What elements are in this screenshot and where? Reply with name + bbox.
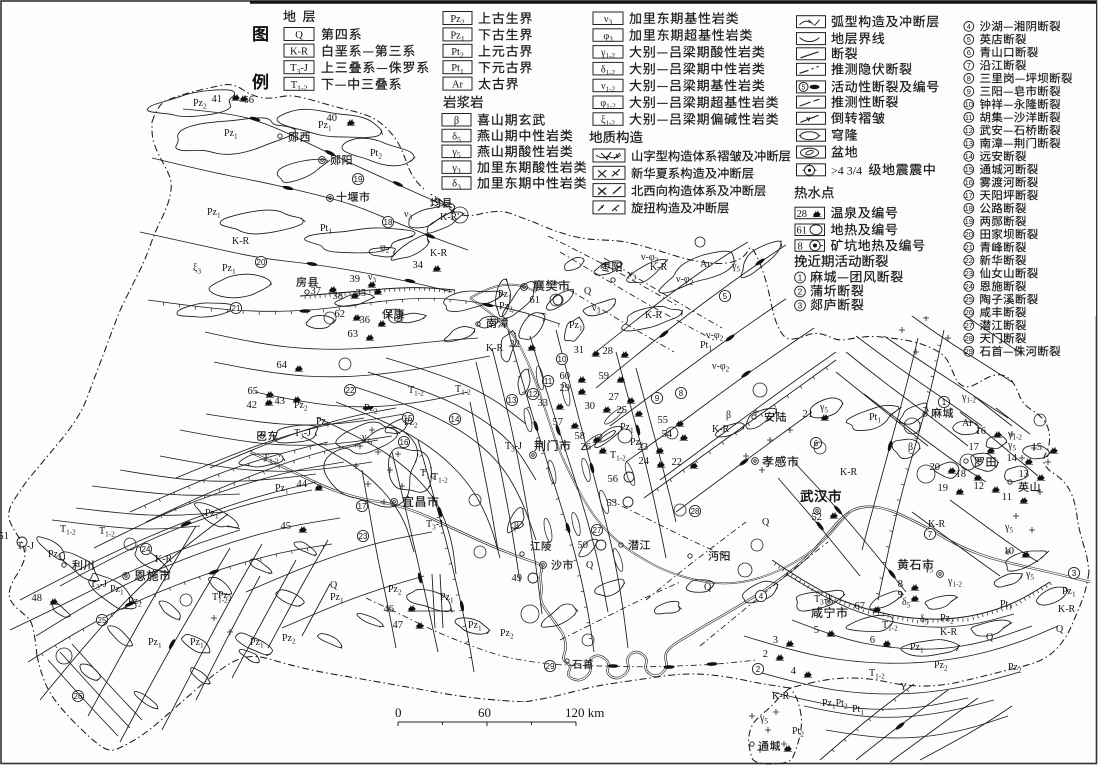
svg-text:Q: Q	[986, 632, 994, 643]
svg-text:18: 18	[956, 469, 967, 480]
svg-text:14: 14	[1007, 453, 1018, 464]
svg-text:3: 3	[798, 301, 803, 310]
svg-text:5: 5	[967, 35, 971, 44]
svg-text:10: 10	[965, 100, 973, 109]
svg-text:3: 3	[773, 635, 778, 646]
svg-text:K-R: K-R	[650, 262, 668, 273]
svg-text:6: 6	[870, 635, 875, 646]
svg-text:120 km: 120 km	[565, 705, 604, 720]
svg-text:24: 24	[142, 545, 151, 554]
svg-text:46: 46	[384, 604, 395, 615]
svg-text:19: 19	[965, 217, 973, 226]
svg-text:7: 7	[928, 530, 933, 539]
svg-text:28: 28	[797, 209, 808, 220]
svg-text:2: 2	[763, 649, 768, 660]
svg-text:21: 21	[965, 243, 973, 252]
svg-text:Q: Q	[295, 30, 303, 41]
svg-text:11: 11	[1002, 492, 1012, 503]
svg-text:4: 4	[791, 666, 797, 677]
svg-text:39: 39	[350, 274, 361, 285]
svg-text:Q: Q	[704, 582, 712, 593]
svg-text:29: 29	[546, 662, 555, 671]
svg-text:1: 1	[771, 740, 776, 751]
svg-text:31: 31	[574, 345, 585, 356]
svg-text:K-R: K-R	[232, 236, 250, 247]
svg-text:25: 25	[617, 405, 628, 416]
svg-text:Ar: Ar	[962, 418, 973, 429]
svg-text:63: 63	[348, 329, 359, 340]
svg-text:64: 64	[277, 360, 288, 371]
svg-text:16: 16	[965, 178, 973, 187]
svg-text:43: 43	[275, 396, 286, 407]
svg-text:22: 22	[346, 386, 355, 395]
svg-text:41: 41	[212, 94, 223, 105]
svg-text:12: 12	[974, 481, 985, 492]
svg-text:26: 26	[965, 308, 973, 317]
svg-text:27: 27	[609, 392, 620, 403]
svg-text:2: 2	[798, 287, 803, 296]
svg-text:0: 0	[395, 705, 402, 720]
svg-text:9: 9	[898, 590, 903, 601]
svg-text:27: 27	[965, 321, 973, 330]
svg-text:24: 24	[639, 456, 650, 467]
svg-text:K-R: K-R	[155, 554, 173, 565]
svg-text:8: 8	[798, 241, 803, 252]
svg-text:K-R: K-R	[486, 343, 504, 354]
svg-text:20: 20	[257, 258, 266, 267]
svg-text:16: 16	[976, 426, 987, 437]
svg-text:36: 36	[360, 315, 371, 326]
svg-text:38: 38	[333, 291, 344, 302]
svg-text:18: 18	[384, 218, 393, 227]
svg-text:29: 29	[560, 383, 571, 394]
svg-text:28: 28	[603, 346, 614, 357]
svg-text:56: 56	[608, 474, 619, 485]
svg-text:52: 52	[812, 512, 823, 523]
svg-text:5: 5	[814, 625, 819, 636]
svg-text:47: 47	[393, 620, 404, 631]
svg-text:K-R: K-R	[712, 424, 730, 435]
svg-text:19: 19	[938, 483, 949, 494]
svg-text:30: 30	[585, 401, 596, 412]
svg-text:59: 59	[599, 371, 610, 382]
svg-text:48: 48	[32, 593, 43, 604]
svg-text:54: 54	[662, 429, 673, 440]
svg-text:42: 42	[247, 400, 258, 411]
svg-text:12: 12	[965, 126, 973, 135]
svg-text:34: 34	[413, 260, 424, 271]
svg-text:32: 32	[510, 339, 521, 350]
svg-text:17: 17	[358, 502, 367, 511]
svg-text:K-R: K-R	[430, 248, 448, 259]
svg-text:25: 25	[98, 616, 107, 625]
svg-text:21: 21	[803, 409, 814, 420]
svg-text:58: 58	[575, 431, 586, 442]
svg-text:Q: Q	[330, 580, 338, 591]
svg-text:28: 28	[691, 507, 700, 516]
svg-text:57: 57	[553, 417, 564, 428]
svg-text:26: 26	[581, 442, 592, 453]
svg-text:22: 22	[965, 256, 973, 265]
svg-text:13: 13	[1019, 469, 1030, 480]
svg-text:1: 1	[798, 273, 803, 282]
svg-text:61: 61	[797, 226, 808, 237]
svg-text:8: 8	[898, 579, 903, 590]
svg-text:Ar: Ar	[700, 259, 711, 270]
svg-text:16: 16	[400, 438, 409, 447]
svg-text:14: 14	[451, 415, 460, 424]
svg-text:53: 53	[607, 498, 618, 509]
svg-text:K-R: K-R	[645, 310, 663, 321]
svg-text:β: β	[454, 116, 459, 127]
svg-text:49: 49	[512, 573, 523, 584]
svg-text:10: 10	[1004, 546, 1015, 557]
svg-text:Q: Q	[586, 560, 594, 571]
svg-text:65: 65	[248, 386, 259, 397]
svg-text:9: 9	[655, 394, 660, 403]
svg-text:6: 6	[967, 48, 971, 57]
svg-text:67: 67	[855, 601, 866, 612]
svg-text:60: 60	[560, 371, 571, 382]
svg-text:28: 28	[965, 334, 973, 343]
svg-text:61: 61	[530, 295, 541, 306]
svg-text:29: 29	[965, 347, 973, 356]
svg-text:20: 20	[965, 230, 973, 239]
svg-text:55: 55	[658, 415, 669, 426]
svg-text:33: 33	[538, 398, 549, 409]
svg-text:21: 21	[232, 304, 241, 313]
svg-text:β: β	[726, 410, 731, 421]
svg-text:22: 22	[672, 457, 683, 468]
svg-text:23: 23	[638, 442, 649, 453]
svg-text:8: 8	[679, 389, 684, 398]
svg-text:50: 50	[578, 540, 589, 551]
svg-text:7: 7	[967, 61, 971, 70]
svg-text:>4 3/4: >4 3/4	[831, 163, 862, 177]
svg-text:10: 10	[558, 355, 567, 364]
svg-text:Q: Q	[762, 517, 770, 528]
svg-text:Y: Y	[900, 682, 907, 693]
svg-text:15: 15	[1032, 442, 1043, 453]
svg-text:17: 17	[965, 191, 973, 200]
svg-text:9: 9	[967, 87, 971, 96]
svg-text:11: 11	[544, 377, 553, 386]
svg-text:Q: Q	[584, 286, 592, 297]
svg-text:β: β	[908, 442, 913, 453]
svg-text:K-R: K-R	[772, 691, 790, 702]
svg-text:13: 13	[965, 139, 973, 148]
svg-text:60: 60	[478, 705, 491, 720]
svg-text:23: 23	[965, 269, 973, 278]
svg-text:51: 51	[0, 531, 9, 542]
svg-text:23: 23	[359, 532, 368, 541]
svg-text:4: 4	[967, 22, 971, 31]
svg-text:13: 13	[508, 396, 517, 405]
svg-text:2: 2	[756, 665, 761, 674]
svg-text:11: 11	[965, 113, 973, 122]
svg-text:3: 3	[1072, 569, 1077, 578]
svg-text:5: 5	[723, 292, 728, 301]
svg-text:K-R: K-R	[290, 47, 308, 58]
svg-text:4: 4	[759, 592, 764, 601]
svg-text:44: 44	[297, 479, 308, 490]
svg-text:18: 18	[965, 204, 973, 213]
svg-text:17: 17	[969, 442, 980, 453]
svg-text:45: 45	[281, 521, 292, 532]
svg-text:40: 40	[327, 113, 338, 124]
svg-text:19: 19	[354, 175, 363, 184]
svg-text:24: 24	[965, 282, 973, 291]
svg-text:Ar: Ar	[452, 80, 464, 91]
svg-text:Q: Q	[1056, 624, 1064, 635]
svg-text:15: 15	[965, 165, 973, 174]
svg-text:27: 27	[593, 526, 602, 535]
svg-text:β: β	[514, 521, 519, 532]
svg-text:8: 8	[967, 74, 971, 83]
svg-text:14: 14	[965, 152, 973, 161]
svg-text:K-R: K-R	[1058, 604, 1076, 615]
svg-text:K-R: K-R	[940, 627, 958, 638]
svg-text:K-R: K-R	[840, 467, 858, 478]
svg-text:25: 25	[965, 295, 973, 304]
svg-text:37: 37	[311, 286, 322, 297]
